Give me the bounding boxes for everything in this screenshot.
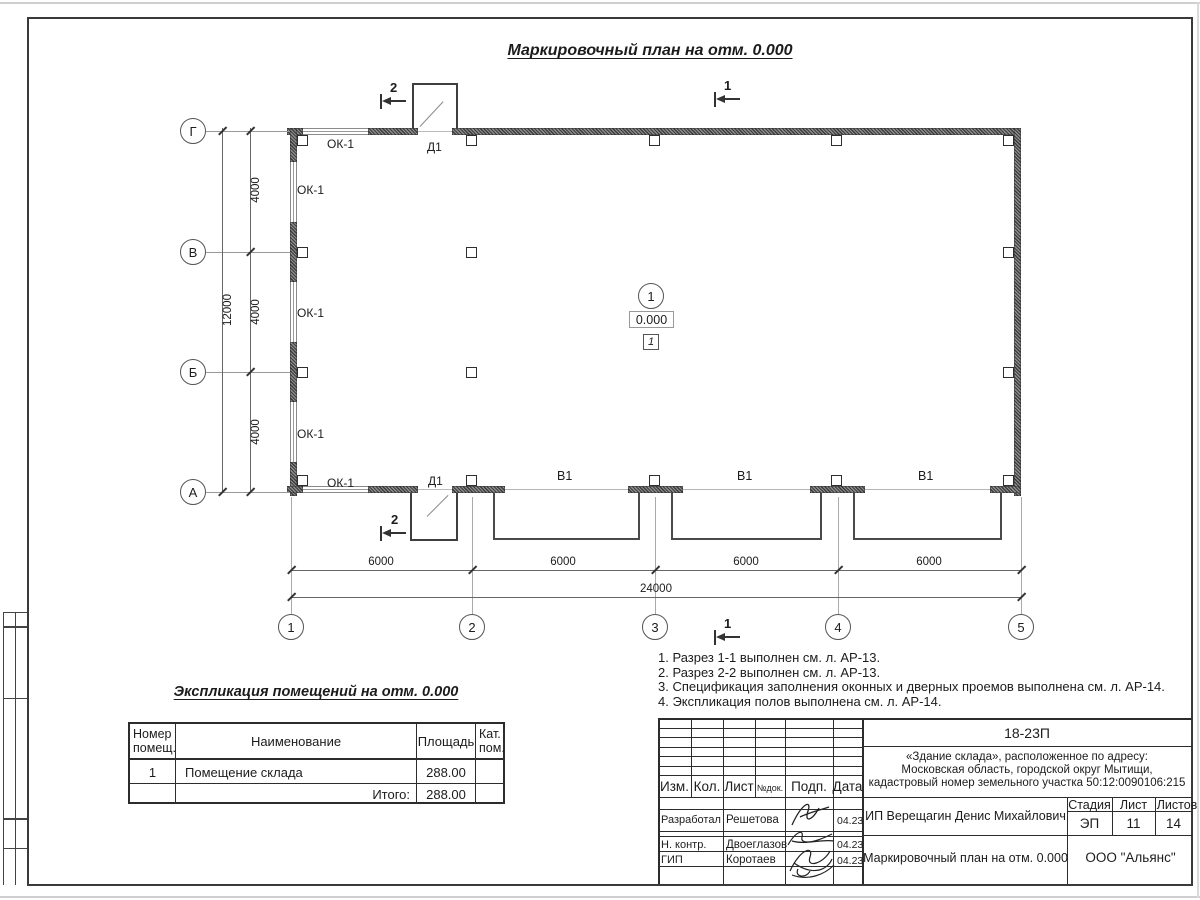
dimension-label: 12000 (222, 291, 234, 329)
section-mark-label: 2 (390, 80, 397, 95)
section-mark-label: 1 (724, 616, 731, 631)
column-marker (466, 367, 477, 378)
section-mark-line (725, 98, 740, 100)
tb-date: 04.23 (837, 839, 863, 851)
column-marker (649, 475, 660, 486)
tb-sheets-value: 14 (1155, 816, 1192, 830)
gate-threshold (505, 489, 628, 490)
schedule-cell-area: 288.00 (417, 765, 475, 779)
tb-date: 04.23 (837, 855, 863, 867)
grid-axis-circle: 5 (1008, 614, 1034, 640)
window-label: ОК-1 (327, 476, 354, 490)
tb-col-list: Лист (723, 779, 755, 794)
tb-line (723, 718, 724, 884)
wall-segment (290, 128, 297, 162)
section-mark-line (391, 100, 406, 102)
tb-line (658, 718, 660, 884)
dimension-label: 4000 (250, 175, 262, 205)
tb-role: ГИП (661, 854, 683, 866)
tb-client: ИП Верещагин Денис Михайлович (864, 808, 1067, 824)
signature-icon (788, 799, 832, 829)
wall-segment (368, 486, 418, 493)
dimension-label: 6000 (543, 556, 583, 568)
wall-segment (452, 128, 1021, 135)
schedule-cell-number: 1 (130, 765, 175, 779)
note-line: 1. Разрез 1-1 выполнен см. л. АР-13. (658, 651, 1188, 666)
schedule-col-area: Площадь (417, 734, 475, 749)
window-label: ОК-1 (297, 183, 324, 197)
schedule-col-room: Номер помещ. (133, 727, 176, 755)
window-opening (290, 402, 297, 462)
gate-label: В1 (557, 469, 572, 483)
frame-bottom (27, 884, 1193, 886)
wall-segment (1014, 128, 1021, 496)
room-number: 1 (647, 289, 654, 304)
axis-label: А (189, 485, 198, 500)
drawing-sheet: Маркировочный план на отм. 0.000 (0, 0, 1200, 900)
tb-role: Разработал (661, 814, 721, 826)
section-mark-label: 2 (391, 512, 398, 527)
column-marker (831, 475, 842, 486)
column-marker (297, 367, 308, 378)
axis-label: 1 (287, 620, 294, 635)
tb-sheets-label: Листов (1153, 799, 1200, 811)
window-opening (290, 162, 297, 222)
page-edge-bottom (0, 896, 1200, 898)
door-threshold (418, 131, 452, 132)
dimension-line (291, 597, 1021, 598)
schedule-total-label: Итого: (176, 787, 410, 802)
axis-label: 4 (834, 620, 841, 635)
grid-axis-circle: Б (180, 359, 206, 385)
axis-label: Б (189, 365, 198, 380)
door-threshold (418, 489, 452, 490)
tb-role: Н. контр. (661, 839, 706, 851)
column-marker (466, 135, 477, 146)
table-line (130, 783, 503, 784)
axis-label: 3 (651, 620, 658, 635)
section-mark-line (391, 532, 406, 534)
gate-apron (493, 493, 640, 540)
column-marker (1003, 475, 1014, 486)
column-marker (466, 247, 477, 258)
wall-segment (290, 342, 297, 402)
gate-threshold (865, 489, 990, 490)
schedule-table: Номер помещ. Наименование Площадь Кат. п… (128, 722, 505, 804)
column-marker (297, 135, 308, 146)
window-label: ОК-1 (327, 137, 354, 151)
axis-label: Г (189, 124, 196, 139)
section-arrow-icon (382, 97, 391, 105)
tb-sheet-name: Маркировочный план на отм. 0.000 (864, 851, 1067, 865)
tb-date: 04.23 (837, 815, 863, 827)
tb-line (862, 835, 1192, 836)
window-opening (290, 282, 297, 342)
tb-line (862, 746, 1192, 747)
gate-apron (671, 493, 822, 540)
margin-strip-line (3, 626, 27, 628)
schedule-col-cat: Кат. пом. (479, 727, 505, 755)
column-marker (297, 475, 308, 486)
wall-segment (990, 486, 1021, 493)
tb-doc-number: 18-23П (864, 725, 1190, 741)
tb-line (658, 756, 862, 757)
tb-line (658, 728, 862, 729)
gate-label: В1 (737, 469, 752, 483)
dimension-label: 6000 (726, 556, 766, 568)
tb-col-izm: Изм. (658, 779, 691, 794)
tb-stage-value: ЭП (1067, 816, 1112, 830)
column-marker (466, 475, 477, 486)
table-line (475, 724, 476, 802)
column-marker (1003, 367, 1014, 378)
tb-line (658, 718, 1192, 720)
note-line: 3. Спецификация заполнения оконных и две… (658, 680, 1188, 695)
grid-axis-circle: А (180, 479, 206, 505)
section-mark-line (725, 636, 740, 638)
dimension-label: 6000 (909, 556, 949, 568)
column-marker (831, 135, 842, 146)
tb-sheet-value: 11 (1112, 816, 1155, 830)
note-line: 2. Разрез 2-2 выполнен см. л. АР-13. (658, 666, 1188, 681)
tb-company: ООО "Альянс" (1069, 850, 1192, 865)
frame-top (27, 17, 1192, 19)
frame-left (27, 17, 29, 885)
grid-axis-circle: Г (180, 118, 206, 144)
tb-col-data: Дата (833, 779, 862, 794)
margin-strip-line (3, 818, 27, 820)
schedule-cell-name: Помещение склада (185, 765, 303, 780)
axis-label: В (189, 245, 198, 260)
gate-threshold (683, 489, 810, 490)
floor-type-value: 1 (648, 336, 654, 348)
margin-strip-line (3, 612, 4, 885)
elevation-marker: 0.000 (629, 311, 674, 328)
dimension-label: 24000 (626, 583, 686, 595)
tb-name: Коротаев (726, 854, 776, 866)
signature-icon (784, 843, 836, 879)
entrance-porch (410, 493, 458, 541)
tb-object-line: кадастровый номер земельного участка 50:… (866, 777, 1188, 789)
margin-strip-line (3, 698, 27, 699)
dimension-label: 4000 (250, 417, 262, 447)
section-arrow-icon (716, 95, 725, 103)
window-label: ОК-1 (297, 427, 324, 441)
door-label: Д1 (428, 474, 443, 488)
column-marker (1003, 247, 1014, 258)
schedule-col-name: Наименование (176, 734, 416, 749)
dimension-label: 4000 (250, 297, 262, 327)
gate-label: В1 (918, 469, 933, 483)
tb-col-kol: Кол. (691, 779, 723, 794)
wall-segment (290, 222, 297, 282)
tb-sheet-label: Лист (1112, 799, 1155, 811)
section-mark-label: 1 (724, 78, 731, 93)
page-edge-right (1197, 2, 1199, 898)
elevation-value: 0.000 (636, 313, 667, 327)
schedule-total-area: 288.00 (417, 787, 475, 801)
window-opening (303, 128, 368, 135)
tb-object-line: «Здание склада», расположенное по адресу… (866, 751, 1188, 763)
tb-name: Двоеглазов (726, 839, 787, 851)
tb-line (658, 747, 862, 748)
grid-axis-circle: 3 (642, 614, 668, 640)
room-number-marker: 1 (638, 283, 664, 309)
floor-type-marker: 1 (643, 334, 659, 350)
dimension-label: 6000 (361, 556, 401, 568)
margin-strip-line (15, 612, 16, 885)
gate-apron (853, 493, 1002, 540)
axis-label: 2 (468, 620, 475, 635)
tb-line (658, 737, 862, 738)
tb-line (658, 766, 862, 767)
page-edge-top (0, 2, 1200, 4)
table-line (130, 758, 503, 760)
grid-axis-circle: В (180, 239, 206, 265)
tb-col-podp: Подп. (785, 779, 833, 794)
margin-strip-line (3, 612, 27, 613)
schedule-title: Экспликация помещений на отм. 0.000 (166, 683, 466, 700)
window-label: ОК-1 (297, 306, 324, 320)
note-line: 4. Экспликация полов выполнена см. л. АР… (658, 695, 1188, 710)
grid-axis-circle: 2 (459, 614, 485, 640)
entrance-porch (412, 83, 458, 128)
wall-segment (628, 486, 683, 493)
section-arrow-icon (716, 633, 725, 641)
column-marker (649, 135, 660, 146)
grid-axis-circle: 4 (825, 614, 851, 640)
tb-object-line: Московская область, городской округ Мыти… (866, 764, 1188, 776)
column-marker (297, 247, 308, 258)
wall-segment (368, 128, 418, 135)
margin-strip-line (3, 848, 27, 849)
plan-title: Маркировочный план на отм. 0.000 (400, 41, 900, 61)
tb-line (658, 775, 862, 776)
axis-label: 5 (1017, 620, 1024, 635)
column-marker (1003, 135, 1014, 146)
grid-axis-circle: 1 (278, 614, 304, 640)
wall-segment (452, 486, 505, 493)
tb-name: Решетова (726, 814, 779, 826)
wall-segment (810, 486, 865, 493)
section-arrow-icon (382, 529, 391, 537)
tb-stage-label: Стадия (1067, 799, 1112, 811)
tb-col-doc: №док. (755, 782, 785, 794)
notes-list: 1. Разрез 1-1 выполнен см. л. АР-13. 2. … (658, 651, 1188, 709)
door-label: Д1 (427, 140, 442, 154)
frame-right (1191, 17, 1193, 885)
